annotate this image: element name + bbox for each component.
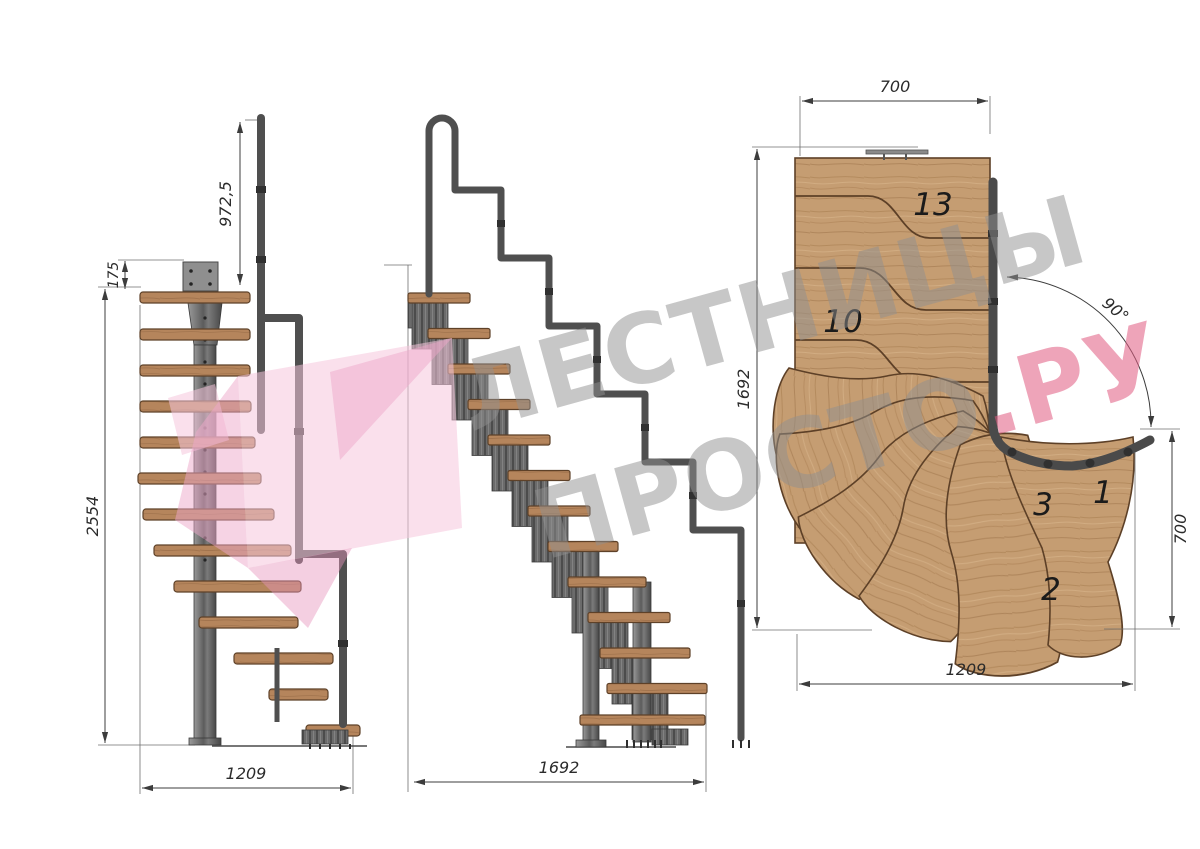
watermark-line2-pink: .РУ: [966, 301, 1176, 459]
dim-side-length: 1692: [539, 758, 580, 777]
dim-landing: 175: [106, 262, 122, 289]
dim-rail-height: 972,5: [216, 181, 235, 227]
wall-mount-plate: [183, 262, 218, 291]
step-label-3: 3: [1033, 487, 1053, 523]
dim-front-width: 1209: [226, 764, 267, 783]
dim-total-height: 2554: [83, 496, 102, 537]
dim-plan-top: 700: [880, 77, 911, 96]
step-label-1: 1: [1093, 475, 1113, 511]
dim-plan-bottom: 1209: [946, 660, 987, 679]
dim-plan-right: 700: [1171, 514, 1190, 545]
technical-drawing: 2554 175 972,5 1209: [0, 0, 1200, 849]
step-label-2: 2: [1041, 572, 1061, 608]
stair-drawing-svg: 2554 175 972,5 1209: [0, 0, 1200, 849]
